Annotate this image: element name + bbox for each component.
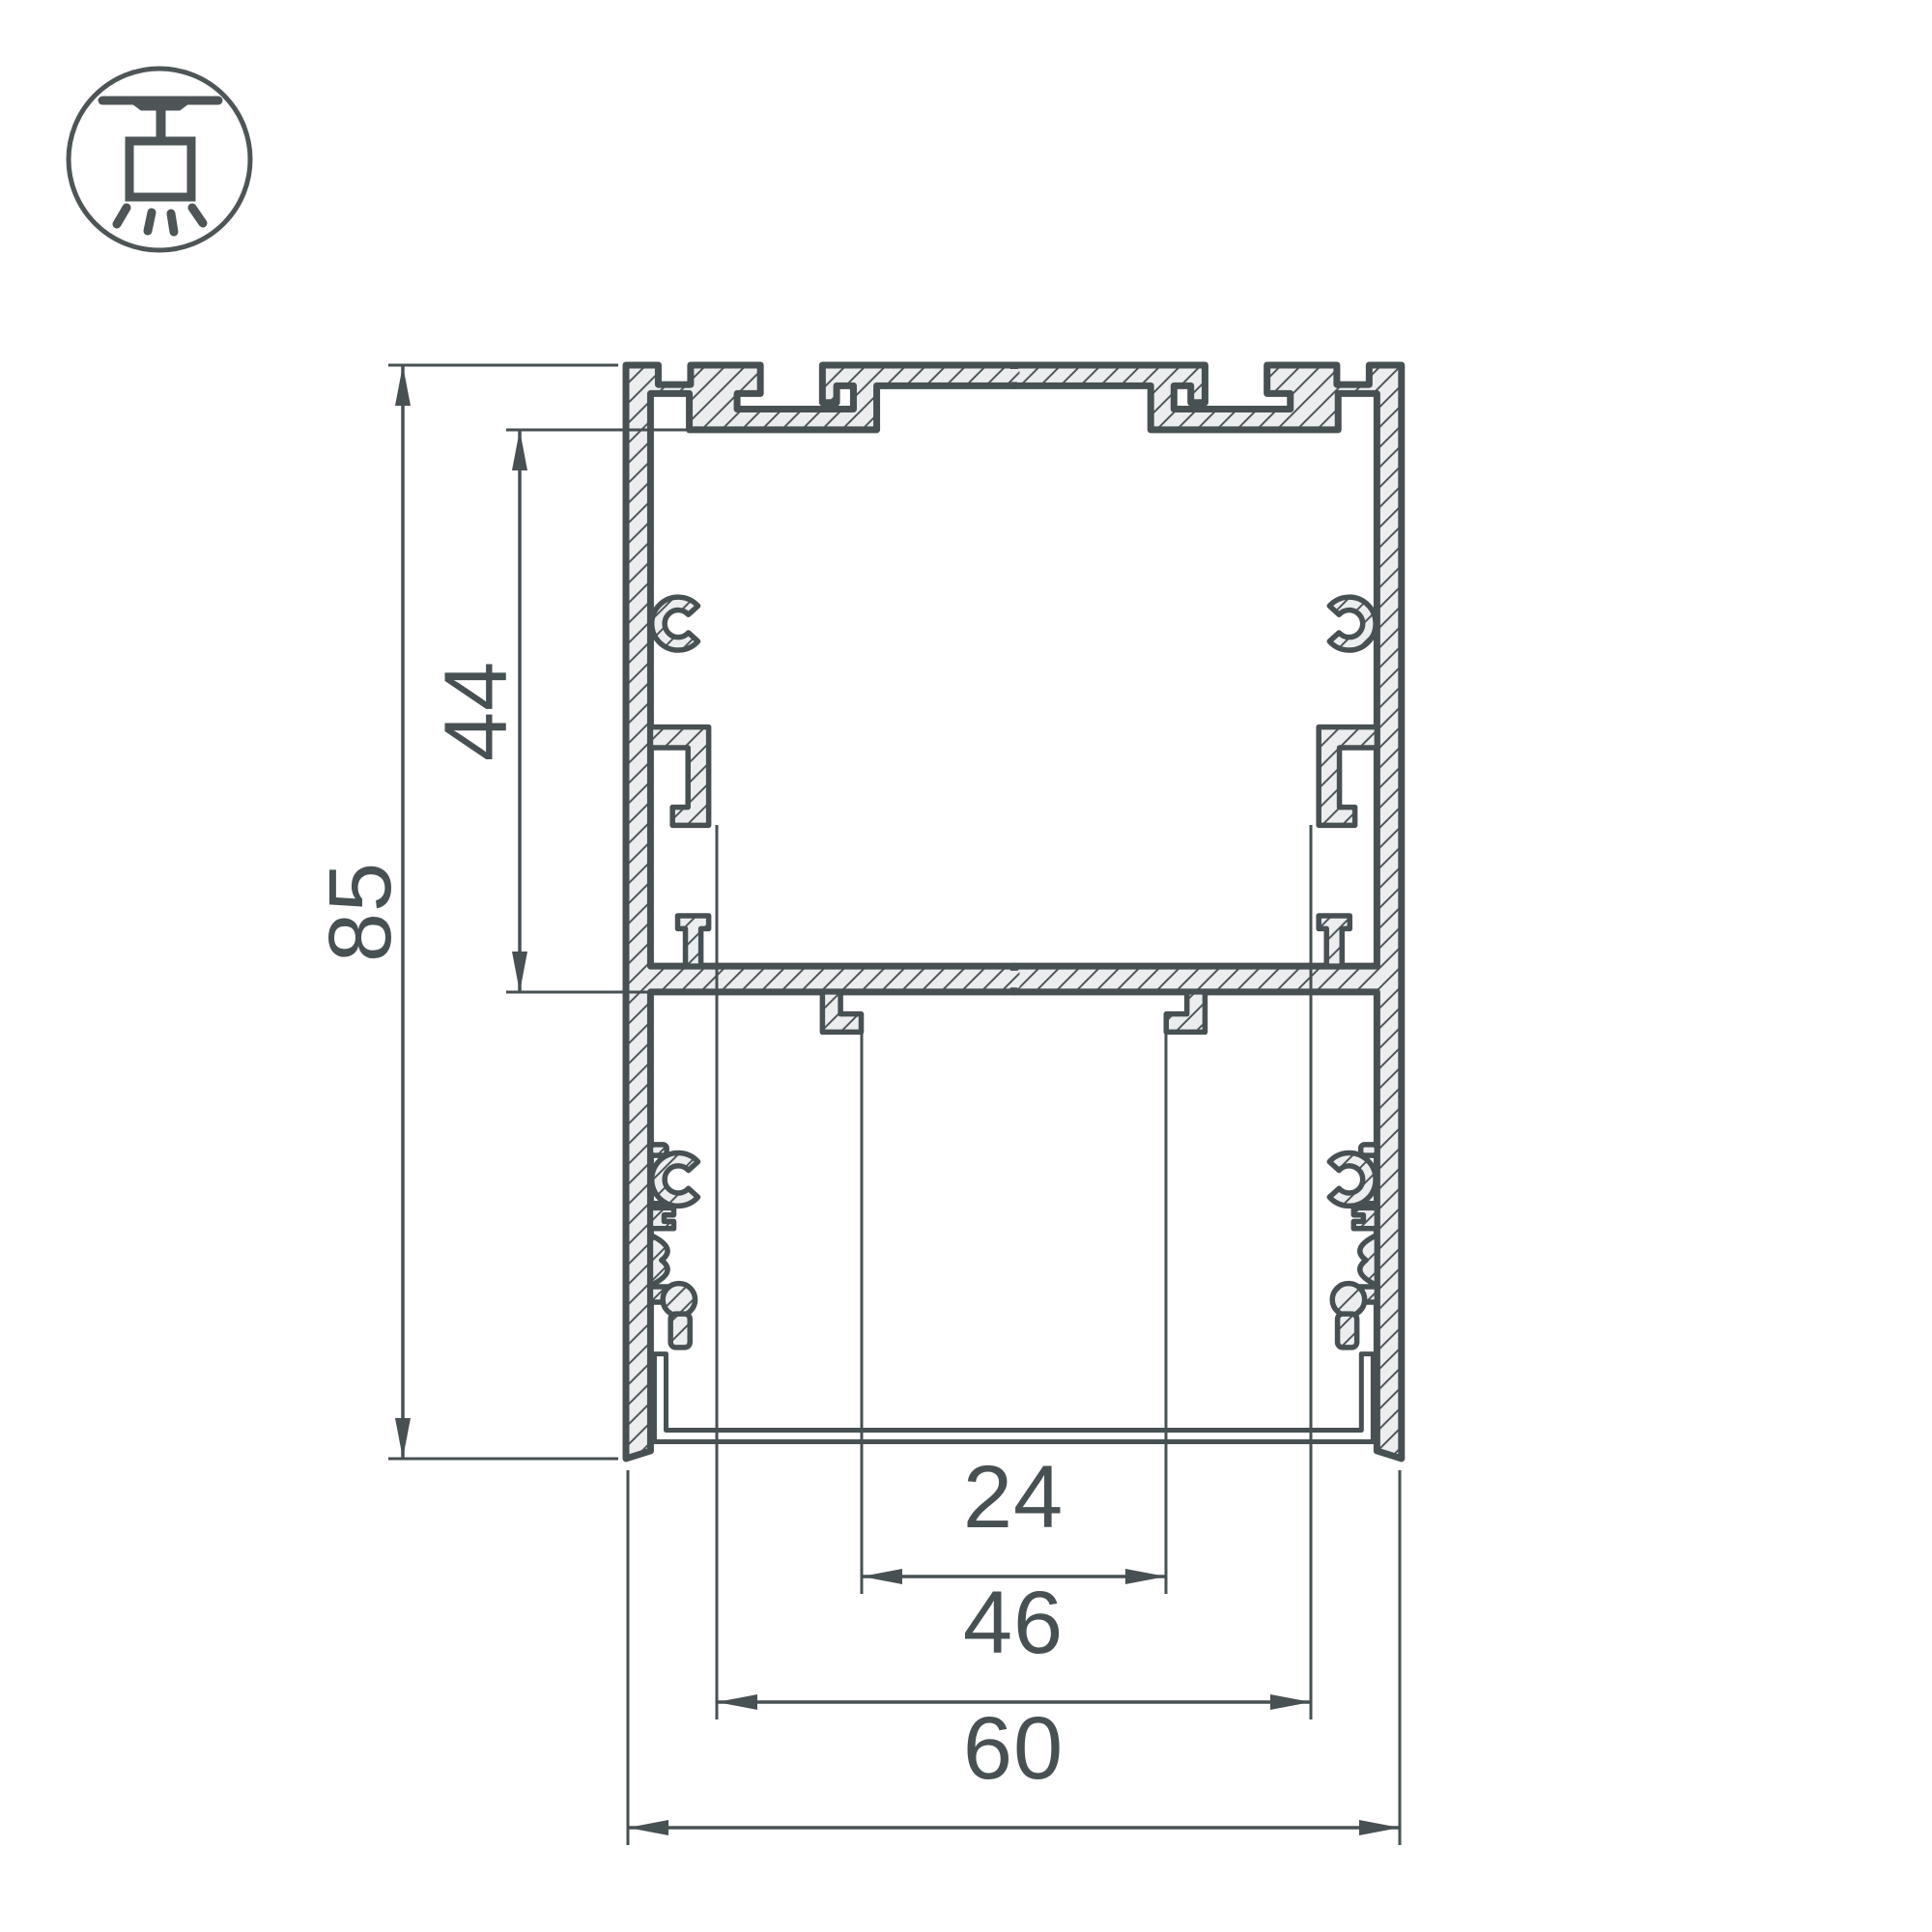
mount-type-icon — [69, 69, 250, 250]
profile-cross-section — [626, 365, 1402, 1459]
dimension-24: 24 — [862, 1032, 1166, 1594]
dim-60-label: 60 — [963, 1699, 1064, 1798]
profile-drawing-canvas: 85 44 24 46 — [0, 0, 1932, 1932]
luminaire-box-icon — [129, 141, 191, 197]
dim-85-label: 85 — [311, 862, 410, 962]
dim-44-label: 44 — [427, 661, 526, 761]
dimension-44: 44 — [427, 430, 746, 992]
pendant-stem-icon — [156, 104, 165, 141]
dimension-85: 85 — [311, 365, 618, 1459]
dimensions: 85 44 24 46 — [311, 365, 1400, 1845]
dimension-46: 46 — [717, 825, 1311, 1719]
dim-24-label: 24 — [963, 1448, 1064, 1547]
light-rays-icon — [117, 208, 203, 232]
profile-left-half — [626, 365, 1013, 1459]
centreline-seam — [1008, 369, 1019, 987]
icon-circle — [69, 69, 250, 250]
diffuser-plate — [654, 1354, 1373, 1442]
dim-46-label: 46 — [963, 1574, 1064, 1672]
profile-right-half — [1013, 365, 1401, 1459]
